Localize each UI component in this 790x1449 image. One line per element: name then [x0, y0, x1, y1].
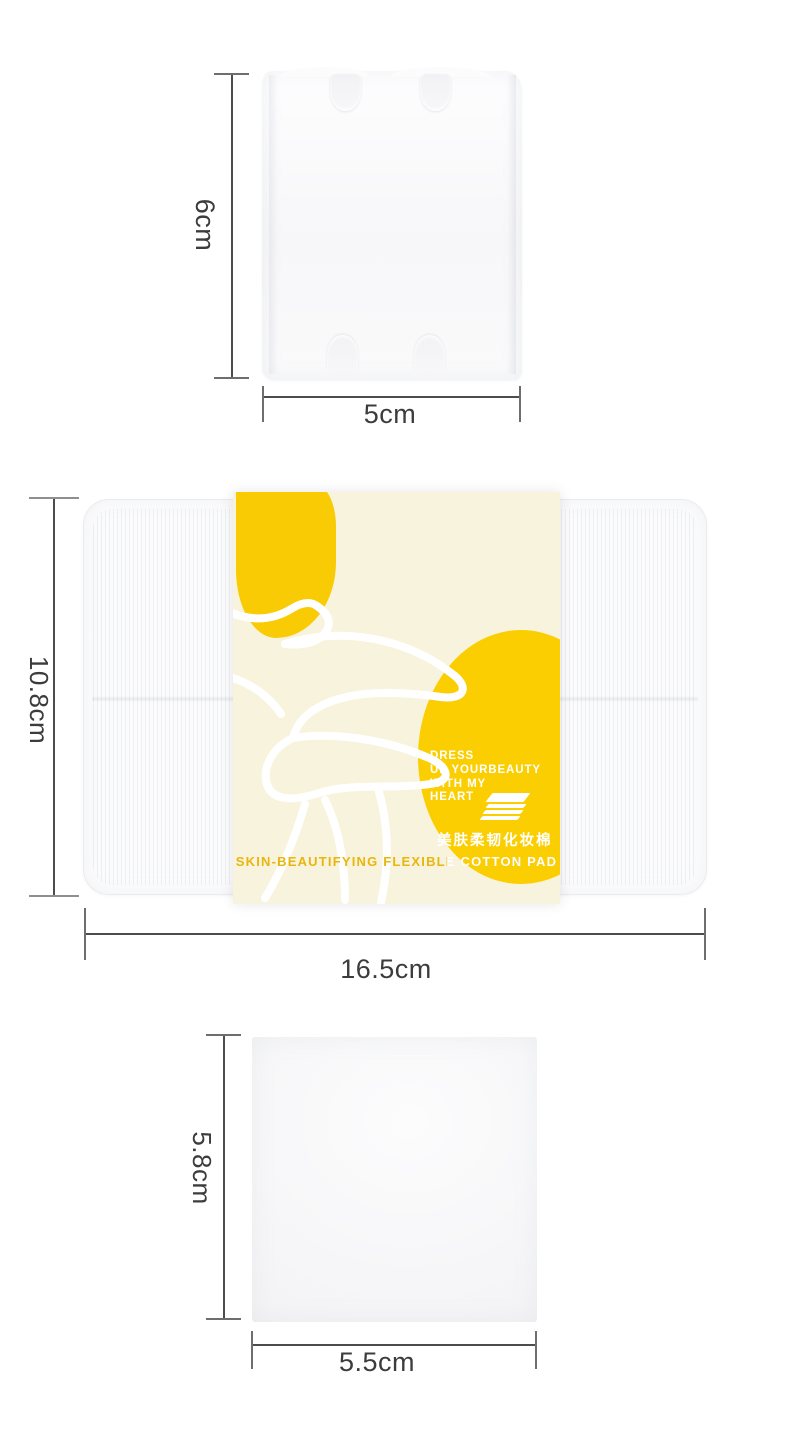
- dimension-cap: [206, 1034, 241, 1036]
- dimension-cap: [206, 1318, 241, 1320]
- height-label-bottom-pad: 5.8cm: [177, 1131, 227, 1205]
- cotton-pad-size-diagram: 6cm 5cm: [0, 0, 790, 1449]
- bottom-pad-photo: [252, 1037, 537, 1322]
- dimension-cap: [251, 1331, 253, 1369]
- dimension-cap: [535, 1331, 537, 1369]
- width-label-bottom-pad: 5.5cm: [307, 1346, 447, 1378]
- section-bottom-pad: 5.8cm 5.5cm: [0, 0, 790, 1449]
